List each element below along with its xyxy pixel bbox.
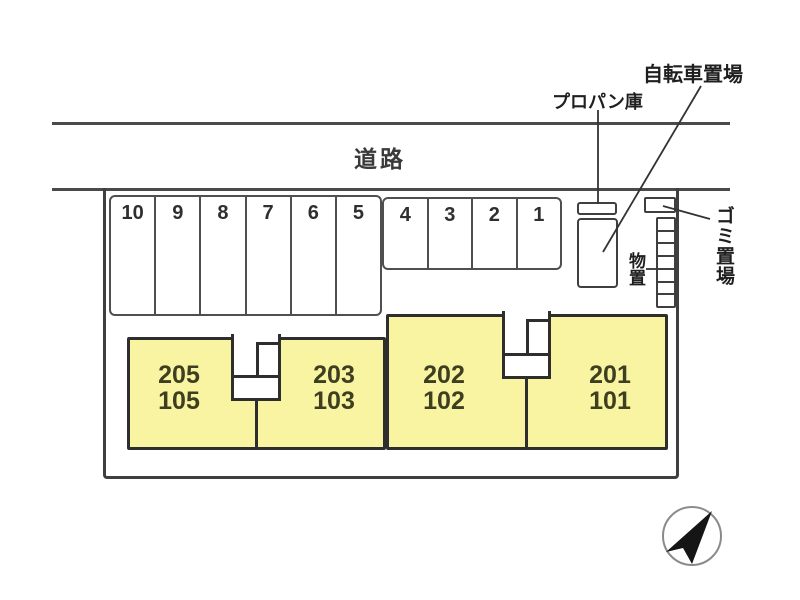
storage-shed-rack — [656, 217, 676, 308]
unit-number-lower: 103 — [282, 388, 386, 414]
parking-stall-4: 4 — [384, 199, 429, 268]
unit-label-201-101: 201 101 — [552, 362, 668, 414]
parking-stall-number: 6 — [292, 202, 335, 225]
parking-stall-7: 7 — [247, 197, 292, 314]
unit-number-upper: 202 — [386, 362, 502, 388]
parking-stall-number: 8 — [201, 202, 244, 225]
unit-label-202-102: 202 102 — [386, 362, 502, 414]
stairwell-landing-east — [502, 353, 551, 379]
unit-number-lower: 105 — [127, 388, 231, 414]
storage-shed-cell — [658, 283, 674, 296]
parking-stall-number: 1 — [518, 204, 561, 227]
parking-row-front: 10 9 8 7 6 5 — [109, 195, 382, 316]
unit-number-lower: 102 — [386, 388, 502, 414]
site-layout-plan: 道路 10 9 8 7 6 5 4 3 2 1 プロパン庫 自転車置場 ゴミ置場… — [0, 0, 800, 600]
road-edge-top-line — [52, 122, 730, 125]
unit-divider-line — [525, 377, 528, 450]
parking-stall-number: 5 — [337, 202, 380, 225]
storage-shed-cell — [658, 270, 674, 283]
unit-label-203-103: 203 103 — [282, 362, 386, 414]
parking-stall-number: 10 — [111, 202, 154, 225]
parking-row-side: 4 3 2 1 — [382, 197, 562, 270]
storage-shed-cell — [658, 232, 674, 245]
parking-stall-1: 1 — [518, 199, 561, 268]
parking-stall-number: 3 — [429, 204, 472, 227]
parking-stall-2: 2 — [473, 199, 518, 268]
compass-needle — [666, 511, 712, 564]
compass-ring — [663, 507, 721, 565]
stairwell-wall-line — [526, 319, 551, 322]
storage-shed-cell — [658, 257, 674, 270]
parking-stall-number: 9 — [156, 202, 199, 225]
bicycle-parking-label: 自転車置場 — [643, 58, 743, 87]
storage-shed-cell — [658, 244, 674, 257]
stairwell-landing-west — [231, 375, 281, 401]
stairwell-wall-line — [256, 342, 281, 345]
garbage-station-label: ゴミ置場 — [710, 206, 737, 292]
unit-number-upper: 203 — [282, 362, 386, 388]
road-label: 道路 — [330, 140, 430, 174]
compass-north-icon — [663, 507, 721, 565]
storage-shed-label: 物置 — [623, 252, 648, 294]
parking-stall-number: 4 — [384, 204, 427, 227]
parking-stall-8: 8 — [201, 197, 246, 314]
stairwell-wall-line — [256, 342, 259, 377]
parking-stall-6: 6 — [292, 197, 337, 314]
parking-stall-3: 3 — [429, 199, 474, 268]
propane-label: プロパン庫 — [552, 88, 643, 114]
parking-stall-9: 9 — [156, 197, 201, 314]
stairwell-wall-line — [526, 319, 529, 355]
storage-shed-cell — [658, 219, 674, 232]
propane-storage-box — [577, 202, 617, 215]
parking-stall-5: 5 — [337, 197, 380, 314]
unit-label-205-105: 205 105 — [127, 362, 231, 414]
unit-number-upper: 205 — [127, 362, 231, 388]
parking-stall-number: 2 — [473, 204, 516, 227]
bicycle-parking-area — [577, 218, 618, 288]
garbage-station-box — [644, 197, 676, 213]
parking-stall-number: 7 — [247, 202, 290, 225]
unit-number-lower: 101 — [552, 388, 668, 414]
storage-shed-cell — [658, 295, 674, 306]
unit-number-upper: 201 — [552, 362, 668, 388]
parking-stall-10: 10 — [111, 197, 156, 314]
unit-divider-line — [255, 399, 258, 450]
